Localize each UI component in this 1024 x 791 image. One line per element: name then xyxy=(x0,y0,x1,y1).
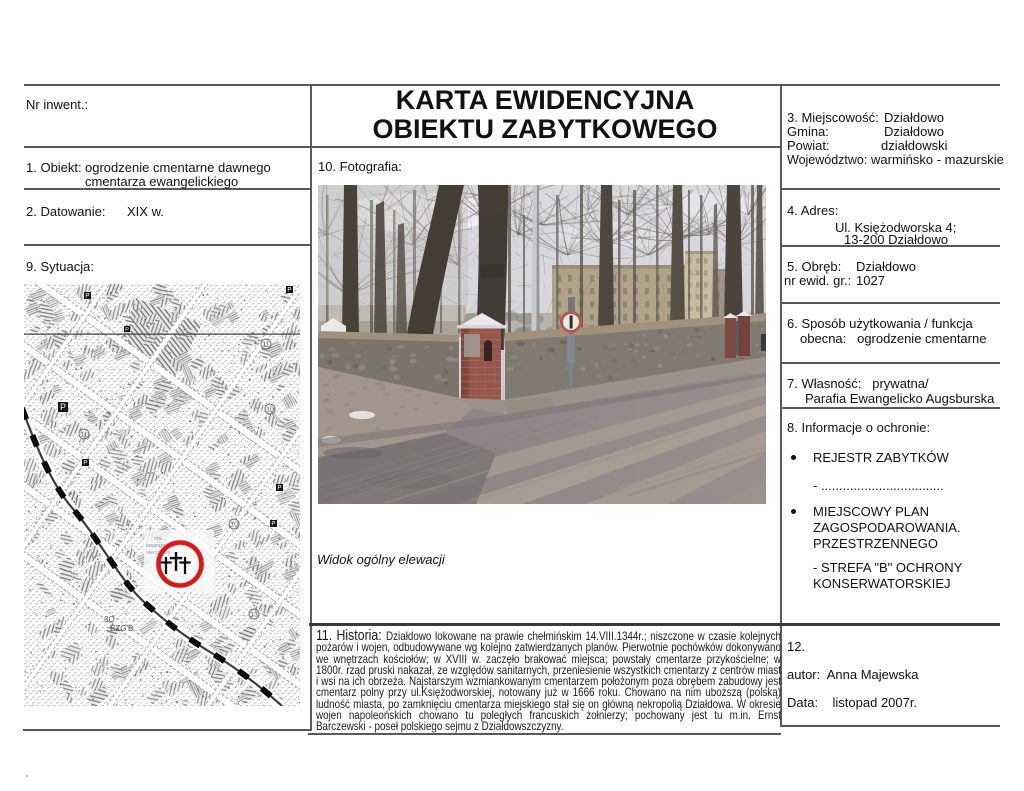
svg-text:10: 10 xyxy=(266,407,274,414)
svg-text:10: 10 xyxy=(230,522,238,529)
svg-text:P: P xyxy=(277,485,281,492)
svg-text:P: P xyxy=(287,287,291,294)
svg-text:cm.: cm. xyxy=(154,536,163,542)
svg-text:11: 11 xyxy=(262,342,269,349)
svg-text:13: 13 xyxy=(250,612,258,619)
svg-text:3Q: 3Q xyxy=(104,615,115,624)
svg-text:P: P xyxy=(85,293,89,300)
svg-text:P: P xyxy=(125,327,129,333)
svg-text:P: P xyxy=(60,402,66,412)
svg-text:11: 11 xyxy=(80,432,87,439)
svg-text:P: P xyxy=(271,521,275,528)
svg-text:EZG'B: EZG'B xyxy=(110,624,133,633)
svg-text:P: P xyxy=(83,460,87,467)
